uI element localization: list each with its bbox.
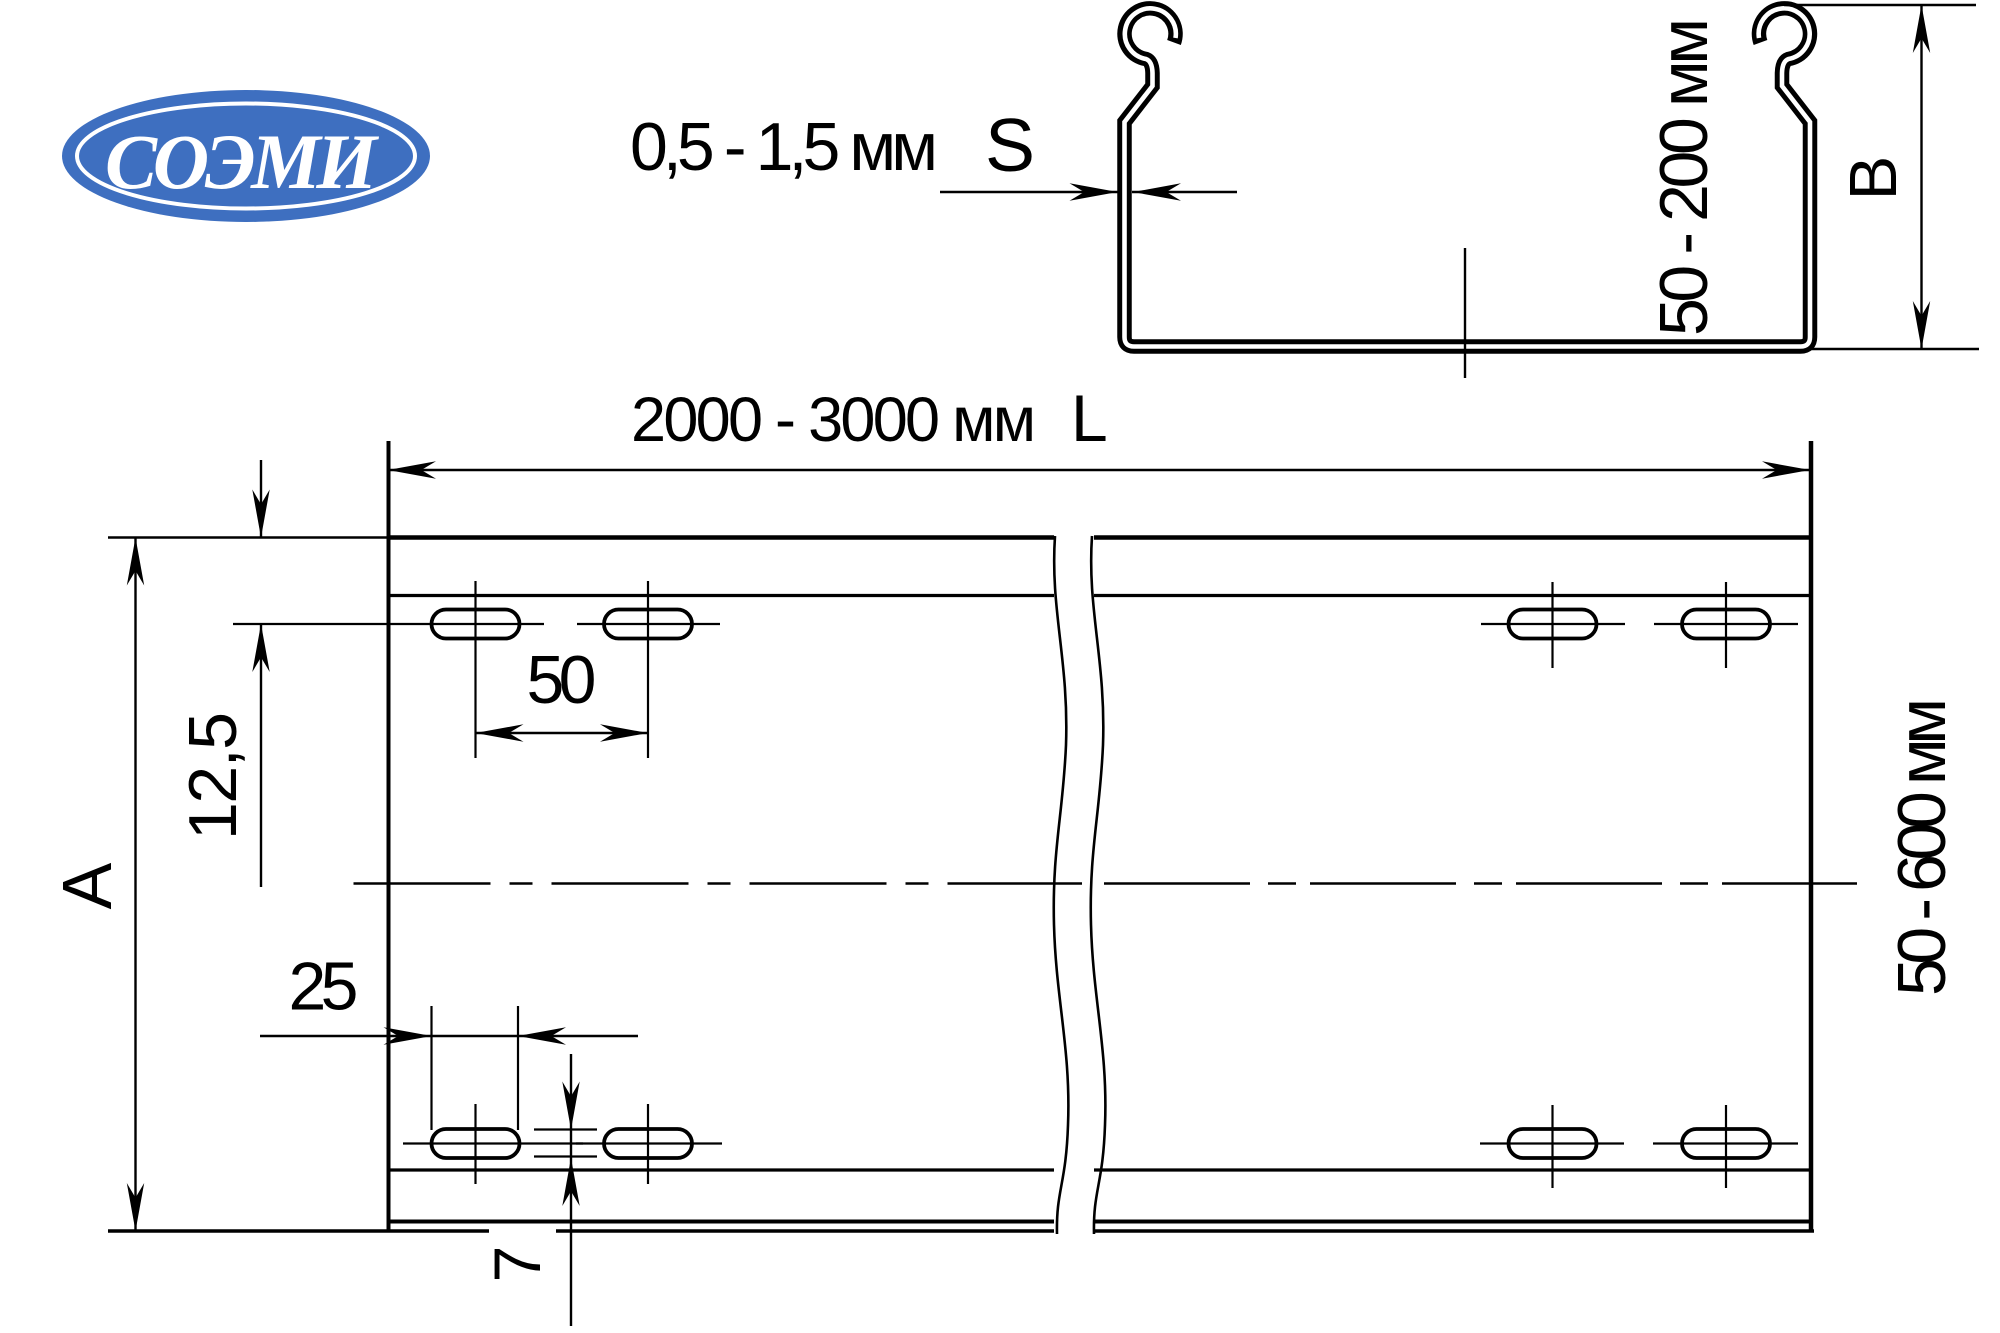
svg-text:A: A bbox=[48, 862, 126, 909]
svg-text:7: 7 bbox=[480, 1246, 554, 1283]
svg-text:50: 50 bbox=[527, 642, 597, 718]
svg-text:2000 - 3000 мм: 2000 - 3000 мм bbox=[631, 385, 1036, 455]
svg-text:25: 25 bbox=[289, 949, 359, 1025]
svg-text:12,5: 12,5 bbox=[175, 712, 251, 840]
svg-text:50 - 200 мм: 50 - 200 мм bbox=[1646, 18, 1722, 336]
svg-text:B: B bbox=[1836, 156, 1911, 201]
svg-text:50 - 600 мм: 50 - 600 мм bbox=[1884, 698, 1960, 996]
svg-text:СОЭМИ: СОЭМИ bbox=[105, 118, 379, 205]
svg-text:0,5 - 1,5 мм: 0,5 - 1,5 мм bbox=[630, 109, 938, 185]
svg-text:S: S bbox=[985, 103, 1035, 187]
svg-text:L: L bbox=[1071, 381, 1108, 455]
